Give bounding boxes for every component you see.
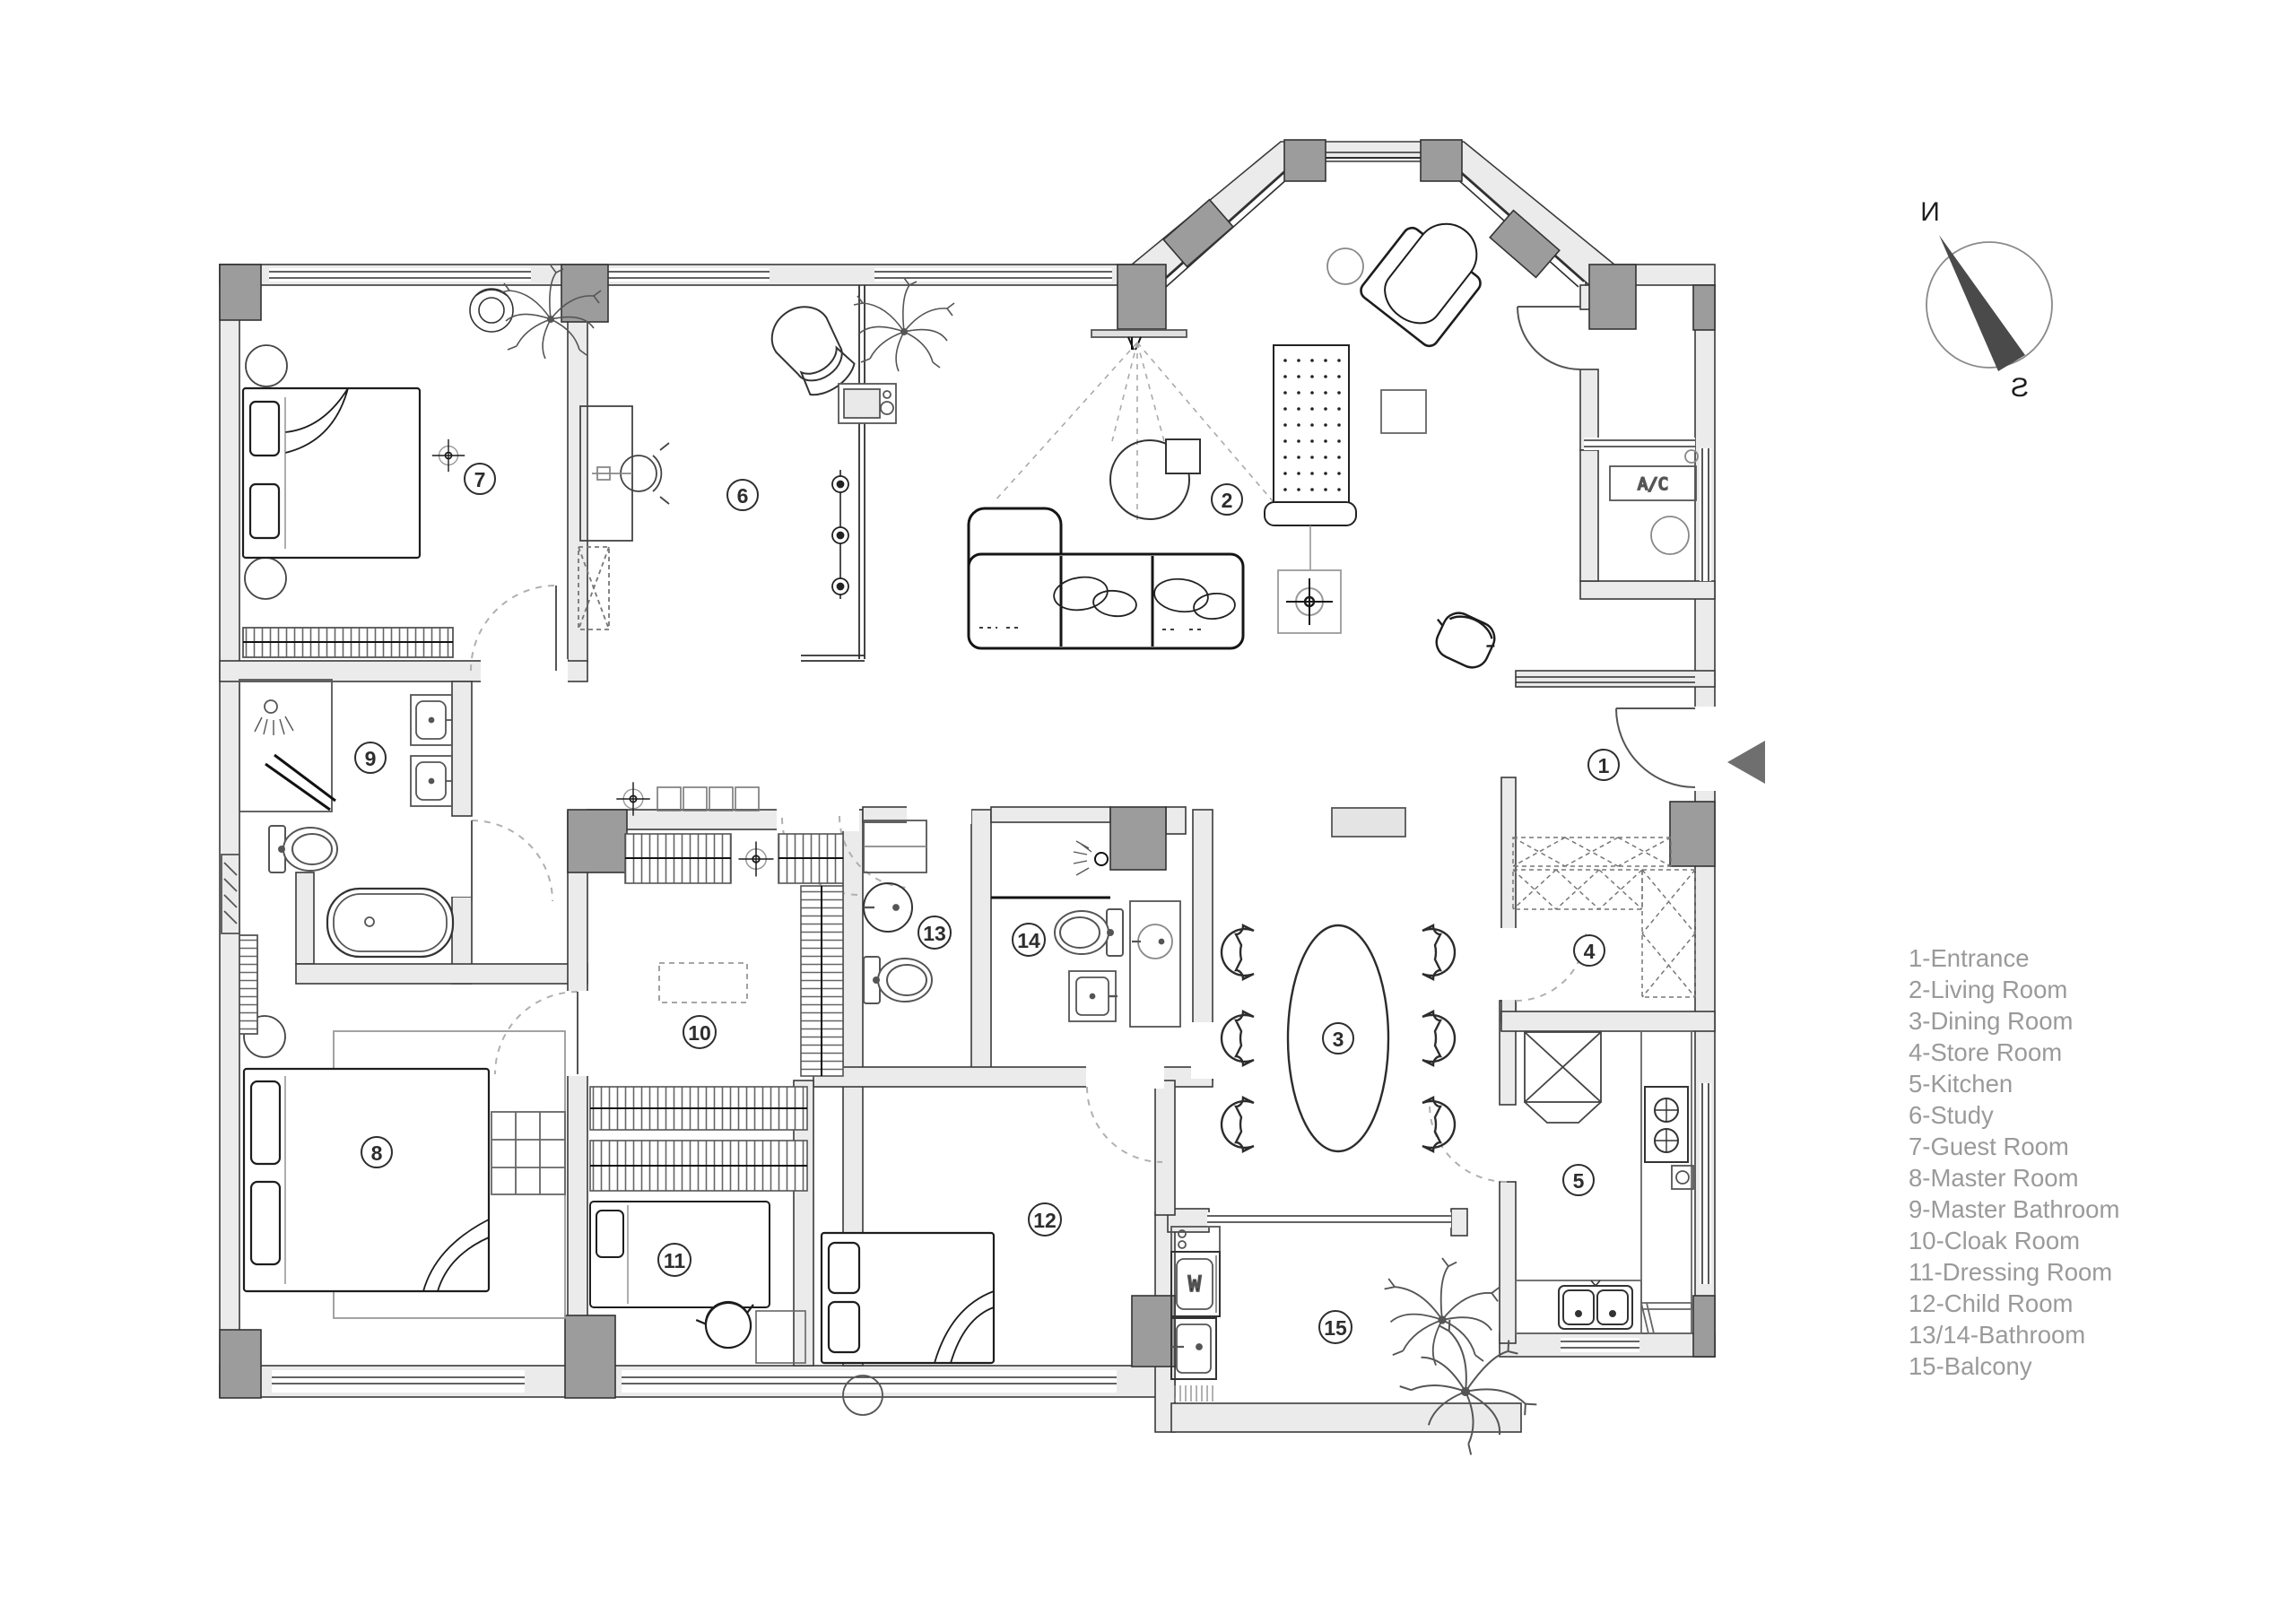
washing-machine: W <box>1171 1227 1220 1316</box>
nightstand <box>245 558 286 599</box>
room-label-6: 6 <box>727 480 758 510</box>
master-bed <box>244 1069 489 1291</box>
room-label-5: 5 <box>1563 1165 1594 1195</box>
toilet <box>269 826 337 872</box>
kitchen-sink <box>1559 1280 1632 1329</box>
column <box>1589 265 1636 329</box>
room-label-7: 7 <box>465 464 495 494</box>
room-label-14: 14 <box>1013 924 1045 956</box>
svg-text:13: 13 <box>923 922 946 945</box>
ac-room: A/C <box>1610 450 1698 554</box>
svg-text:4: 4 <box>1584 940 1596 963</box>
legend-item: 1-Entrance <box>1909 944 2030 972</box>
washer-label: W <box>1188 1271 1202 1297</box>
wall-left <box>220 265 239 1397</box>
desk-chair <box>592 443 669 504</box>
nightstand <box>246 345 287 386</box>
door-arc-bath9 <box>472 820 552 901</box>
sink <box>411 756 453 806</box>
master-room-furniture <box>239 935 565 1318</box>
wall-ac-left-c <box>1580 450 1598 581</box>
wall-room12-right <box>1155 1081 1175 1215</box>
compass-south: S <box>2011 373 2029 403</box>
svg-text:14: 14 <box>1017 929 1040 952</box>
column <box>1110 807 1166 870</box>
balcony-wall-bottom <box>1171 1403 1521 1432</box>
svg-text:15: 15 <box>1324 1316 1347 1340</box>
pedestal-sink <box>864 883 912 932</box>
floor-plan-page: A/C W 1 2 3 4 5 6 7 8 9 <box>0 0 2296 1623</box>
legend-item: 15-Balcony <box>1909 1352 2032 1380</box>
legend-item: 5-Kitchen <box>1909 1070 2013 1098</box>
radiator <box>239 935 257 1034</box>
bench-grid <box>491 1112 565 1194</box>
door-arc-ac-platform <box>1518 307 1580 369</box>
wall-entrance-top <box>1516 671 1715 687</box>
wall-master-top <box>296 964 587 984</box>
svg-text:12: 12 <box>1033 1209 1057 1232</box>
media-panel <box>1265 345 1356 570</box>
svg-text:10: 10 <box>688 1021 711 1045</box>
dining-chair <box>1222 1011 1254 1065</box>
plant-icon <box>1386 1300 1557 1471</box>
svg-text:3: 3 <box>1333 1028 1344 1051</box>
toilet <box>864 957 932 1003</box>
plant-icon <box>854 278 954 371</box>
shower-head-icon <box>255 700 293 735</box>
legend-item: 10-Cloak Room <box>1909 1227 2080 1254</box>
kitchen-furniture <box>1516 1031 1693 1333</box>
child-bed <box>822 1233 994 1363</box>
wall-tub-nook <box>296 872 314 964</box>
svg-text:11: 11 <box>664 1249 686 1272</box>
legend-item: 7-Guest Room <box>1909 1133 2069 1160</box>
closet-rail <box>590 1087 807 1130</box>
legend-item: 9-Master Bathroom <box>1909 1195 2119 1223</box>
column <box>1670 802 1715 866</box>
kitchen-counter-right <box>1641 1031 1692 1309</box>
column <box>1132 1296 1175 1367</box>
shoe-cabinet-dashed <box>1513 838 1671 866</box>
svg-text:7: 7 <box>474 468 486 491</box>
toilet <box>1055 909 1123 956</box>
ac-label: A/C <box>1638 474 1668 494</box>
floor-lamp <box>1327 248 1363 284</box>
tall-sink-cabinet <box>1130 901 1180 1027</box>
study-furniture <box>578 278 954 629</box>
pendant-light-icon <box>470 289 513 332</box>
water-heater <box>1672 1166 1693 1189</box>
entrance-arrow-icon <box>1727 741 1765 784</box>
svg-text:2: 2 <box>1222 489 1233 512</box>
room-label-9: 9 <box>355 742 386 773</box>
legend-item: 3-Dining Room <box>1909 1007 2073 1035</box>
vanity-sink <box>1069 971 1118 1021</box>
closet-rail <box>590 1141 807 1191</box>
ceiling-light-icon <box>432 439 465 472</box>
dining-chair <box>1422 925 1455 979</box>
door-arc-entry <box>1616 708 1695 787</box>
room-label-2: 2 <box>1212 484 1242 515</box>
column <box>1693 285 1715 330</box>
dining-chair <box>1422 1011 1455 1065</box>
balcony-sink <box>1171 1318 1216 1379</box>
study-glass-partition <box>801 285 865 661</box>
door-arc-store <box>1516 931 1586 1001</box>
wall-bath14-top <box>991 807 1110 822</box>
sink <box>411 695 453 745</box>
dishwasher <box>1641 1303 1692 1333</box>
corridor-lights <box>832 470 848 599</box>
bay-armchair <box>1357 202 1501 350</box>
shower-head-icon <box>1074 841 1108 875</box>
wall-master-right <box>568 811 587 1366</box>
fridge <box>1525 1032 1601 1123</box>
legend-item: 11-Dressing Room <box>1909 1258 2112 1286</box>
legend-item: 6-Study <box>1909 1101 1994 1129</box>
column <box>220 265 261 320</box>
corridor-bench <box>657 787 759 811</box>
closet-rail-vertical <box>801 886 843 1076</box>
compass-north: N <box>1920 197 1940 227</box>
guest-room-furniture <box>243 265 601 657</box>
room-label-12: 12 <box>1029 1203 1061 1236</box>
room-label-1: 1 <box>1588 750 1619 780</box>
shower-door <box>265 755 335 810</box>
svg-text:5: 5 <box>1573 1169 1585 1193</box>
wall-bath13-14-divider <box>971 810 991 1081</box>
room-label-10: 10 <box>683 1016 716 1048</box>
balcony-window-cap <box>1451 1209 1467 1236</box>
wall-room7-room6 <box>568 285 587 662</box>
closet-rail <box>778 834 843 883</box>
column <box>220 1330 261 1398</box>
wall-store-kitchen <box>1501 1011 1715 1031</box>
room-label-13: 13 <box>918 916 951 949</box>
ceiling-light-box <box>1278 570 1341 633</box>
shower-cell <box>239 680 332 811</box>
legend-item: 4-Store Room <box>1909 1038 2062 1066</box>
svg-text:6: 6 <box>737 484 749 508</box>
side-table <box>1166 439 1200 473</box>
column-bay <box>1421 140 1462 181</box>
sofa <box>969 508 1243 648</box>
master-bath-furniture <box>222 680 453 957</box>
room-label-15: 15 <box>1319 1311 1352 1343</box>
room-label-11: 11 <box>658 1244 691 1276</box>
column <box>561 265 608 322</box>
island-dashed <box>659 963 747 1002</box>
compass-rose: N S <box>1920 197 2052 403</box>
wall-bath9-right-upper <box>452 681 472 816</box>
bath13-furniture <box>864 820 932 1003</box>
door-arc-room12 <box>1087 1087 1162 1162</box>
bathtub <box>327 889 453 957</box>
door-arc-room7 <box>471 586 556 671</box>
room-label-4: 4 <box>1574 935 1605 966</box>
room-label-3: 3 <box>1323 1023 1353 1054</box>
wall-ac-bottom <box>1580 581 1715 599</box>
guest-bed <box>243 388 420 558</box>
kitchen-wall-left-lower <box>1500 1182 1516 1343</box>
column <box>1693 1296 1715 1357</box>
hall-cabinet <box>1332 808 1405 837</box>
legend-item: 13/14-Bathroom <box>1909 1321 2085 1349</box>
legend-item: 12-Child Room <box>1909 1289 2073 1317</box>
legend-item: 2-Living Room <box>1909 976 2067 1003</box>
floor-plan-canvas: A/C W 1 2 3 4 5 6 7 8 9 <box>0 0 2296 1623</box>
plant-icon <box>1385 1258 1500 1366</box>
dining-chair <box>1222 1098 1254 1151</box>
svg-text:9: 9 <box>365 747 377 770</box>
drain-grate <box>1175 1385 1213 1402</box>
svg-text:1: 1 <box>1598 754 1610 777</box>
legend-item: 8-Master Room <box>1909 1164 2079 1192</box>
dining-chair <box>1222 925 1254 979</box>
wall-bath14-notch <box>1166 807 1186 834</box>
svg-text:8: 8 <box>371 1141 383 1165</box>
ceiling-light-icon <box>739 842 774 877</box>
room-label-8: 8 <box>361 1137 392 1167</box>
closet-rail <box>625 834 731 883</box>
legend: 1-Entrance 2-Living Room 3-Dining Room 4… <box>1909 944 2119 1380</box>
entrance-store-furniture <box>1513 741 1765 997</box>
column <box>565 1315 615 1398</box>
wall-tv <box>839 384 896 423</box>
living-room-furniture <box>969 202 1501 837</box>
square-fixture <box>1381 390 1426 433</box>
column <box>568 810 627 872</box>
column-bay <box>1284 140 1326 181</box>
accent-chair <box>1425 604 1501 673</box>
column <box>1118 265 1166 329</box>
compass-needle-icon <box>1939 235 2025 371</box>
store-closet-dashed <box>1513 870 1695 997</box>
cooktop <box>1645 1087 1688 1162</box>
dining-chair <box>1422 1098 1455 1151</box>
ac-duct <box>1651 516 1689 554</box>
